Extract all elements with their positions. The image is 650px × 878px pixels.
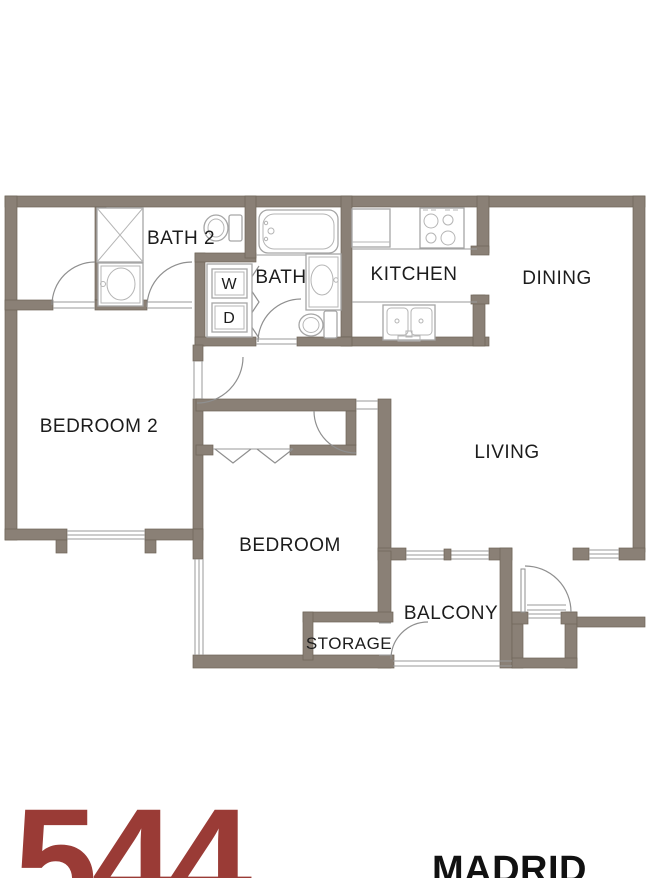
floor-plan-page: BATH 2 BATH KITCHEN DINING BEDROOM 2 LIV…: [0, 0, 650, 878]
room-label-kitchen: KITCHEN: [371, 264, 458, 285]
unit-number: 544: [14, 786, 246, 878]
window-icon: [589, 550, 619, 558]
door-swing-icon: [52, 262, 95, 305]
shower-icon: [97, 208, 143, 262]
door-swing-icon: [197, 357, 243, 403]
door-swing-icon: [147, 262, 192, 307]
door-swing-icon: [258, 299, 301, 342]
window-icon: [406, 549, 489, 560]
room-label-dining: DINING: [522, 268, 592, 289]
plan-name: MADRID: [432, 851, 587, 878]
washer-label: W: [221, 276, 237, 293]
door-swing-icon: [391, 622, 428, 659]
stove-icon: [420, 208, 464, 248]
room-label-bath: BATH: [255, 267, 306, 288]
window-icon: [195, 559, 203, 655]
refrigerator-icon: [352, 209, 390, 247]
balcony-railing: [393, 661, 512, 666]
kitchen-sink-icon: [383, 305, 435, 341]
bifold-door-icon: [213, 449, 293, 463]
room-label-bedroom2: BEDROOM 2: [40, 416, 159, 437]
room-label-living: LIVING: [474, 442, 539, 463]
bathtub-icon: [256, 210, 341, 255]
room-label-balcony: BALCONY: [404, 603, 498, 624]
toilet-icon: [299, 311, 337, 338]
window-icon: [67, 531, 145, 539]
windows: [53, 302, 619, 666]
room-label-storage: STORAGE: [306, 634, 392, 653]
room-label-bath2: BATH 2: [147, 228, 215, 249]
vanity-sink-icon: [306, 254, 341, 310]
floor-plan: BATH 2 BATH KITCHEN DINING BEDROOM 2 LIV…: [0, 0, 650, 700]
dryer-label: D: [223, 310, 235, 327]
room-label-bedroom: BEDROOM: [239, 535, 341, 556]
vanity-sink-icon: [98, 263, 143, 306]
